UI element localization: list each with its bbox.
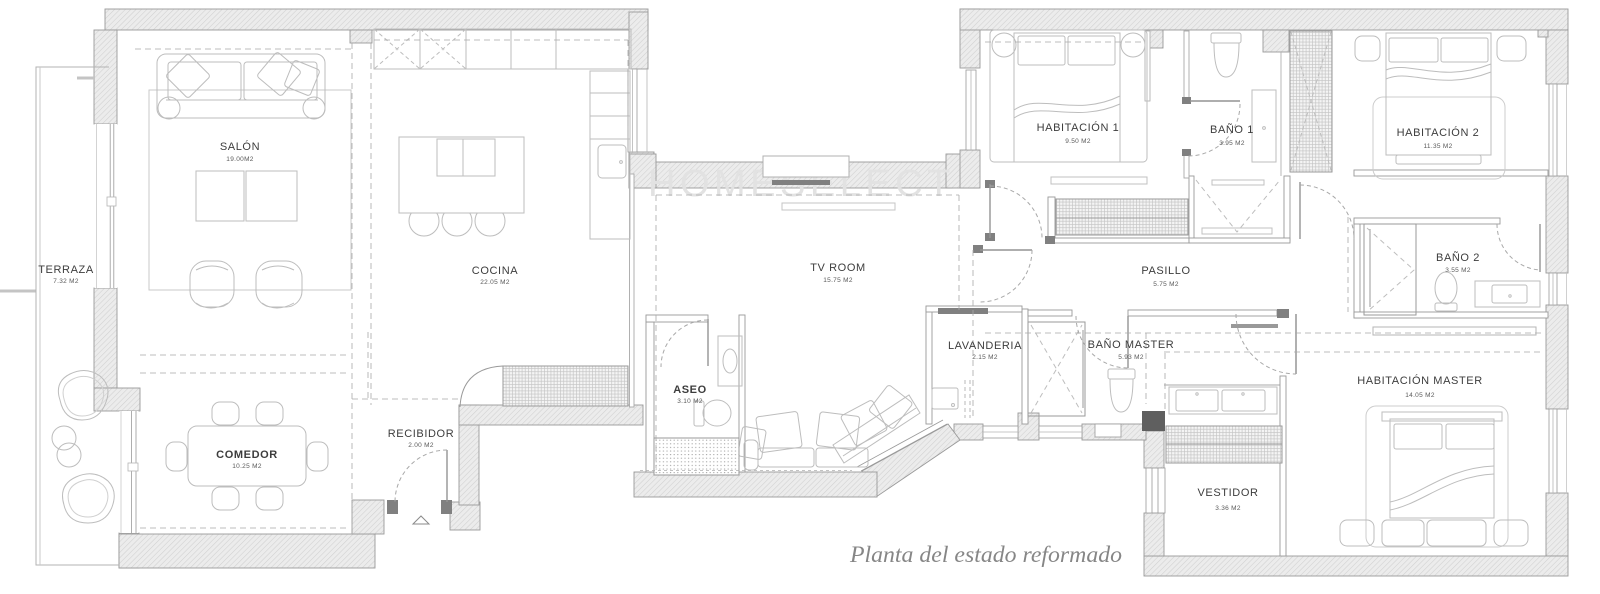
- svg-text:3.55 M2: 3.55 M2: [1445, 267, 1471, 274]
- svg-text:SALÓN: SALÓN: [220, 140, 260, 153]
- svg-text:9.50 M2: 9.50 M2: [1065, 138, 1091, 145]
- svg-text:VESTIDOR: VESTIDOR: [1197, 487, 1258, 499]
- svg-text:22.05 M2: 22.05 M2: [480, 279, 510, 286]
- svg-text:COCINA: COCINA: [472, 265, 518, 277]
- svg-text:HABITACIÓN 2: HABITACIÓN 2: [1397, 126, 1480, 139]
- svg-text:5.93 M2: 5.93 M2: [1118, 354, 1144, 361]
- svg-text:Planta del estado reformado: Planta del estado reformado: [849, 542, 1122, 568]
- svg-text:15.75 M2: 15.75 M2: [823, 277, 853, 284]
- svg-text:ASEO: ASEO: [673, 384, 707, 396]
- svg-text:3.36 M2: 3.36 M2: [1215, 505, 1241, 512]
- svg-text:TV ROOM: TV ROOM: [810, 262, 866, 274]
- svg-text:COMEDOR: COMEDOR: [216, 449, 278, 461]
- svg-text:5.75 M2: 5.75 M2: [1153, 281, 1179, 288]
- svg-text:2.00 M2: 2.00 M2: [408, 442, 434, 449]
- svg-text:7.32 M2: 7.32 M2: [53, 278, 79, 285]
- svg-text:HABITACIÓN 1: HABITACIÓN 1: [1037, 121, 1120, 134]
- svg-text:BAÑO MASTER: BAÑO MASTER: [1088, 338, 1175, 351]
- svg-text:3.95 M2: 3.95 M2: [1219, 140, 1245, 147]
- svg-text:RECIBIDOR: RECIBIDOR: [388, 428, 455, 440]
- svg-text:11.35 M2: 11.35 M2: [1423, 143, 1452, 150]
- svg-text:BAÑO 1: BAÑO 1: [1210, 123, 1254, 136]
- svg-text:HABITACIÓN MASTER: HABITACIÓN MASTER: [1357, 374, 1483, 387]
- svg-text:LAVANDERIA: LAVANDERIA: [948, 340, 1022, 352]
- svg-text:TERRAZA: TERRAZA: [38, 264, 94, 276]
- svg-text:PASILLO: PASILLO: [1141, 265, 1190, 277]
- svg-text:14.05 M2: 14.05 M2: [1405, 392, 1435, 399]
- svg-text:3.10 M2: 3.10 M2: [677, 398, 703, 405]
- svg-text:19.00M2: 19.00M2: [226, 156, 253, 163]
- svg-text:BAÑO 2: BAÑO 2: [1436, 251, 1480, 264]
- svg-text:2.15 M2: 2.15 M2: [972, 354, 998, 361]
- svg-text:10.25 M2: 10.25 M2: [232, 463, 262, 470]
